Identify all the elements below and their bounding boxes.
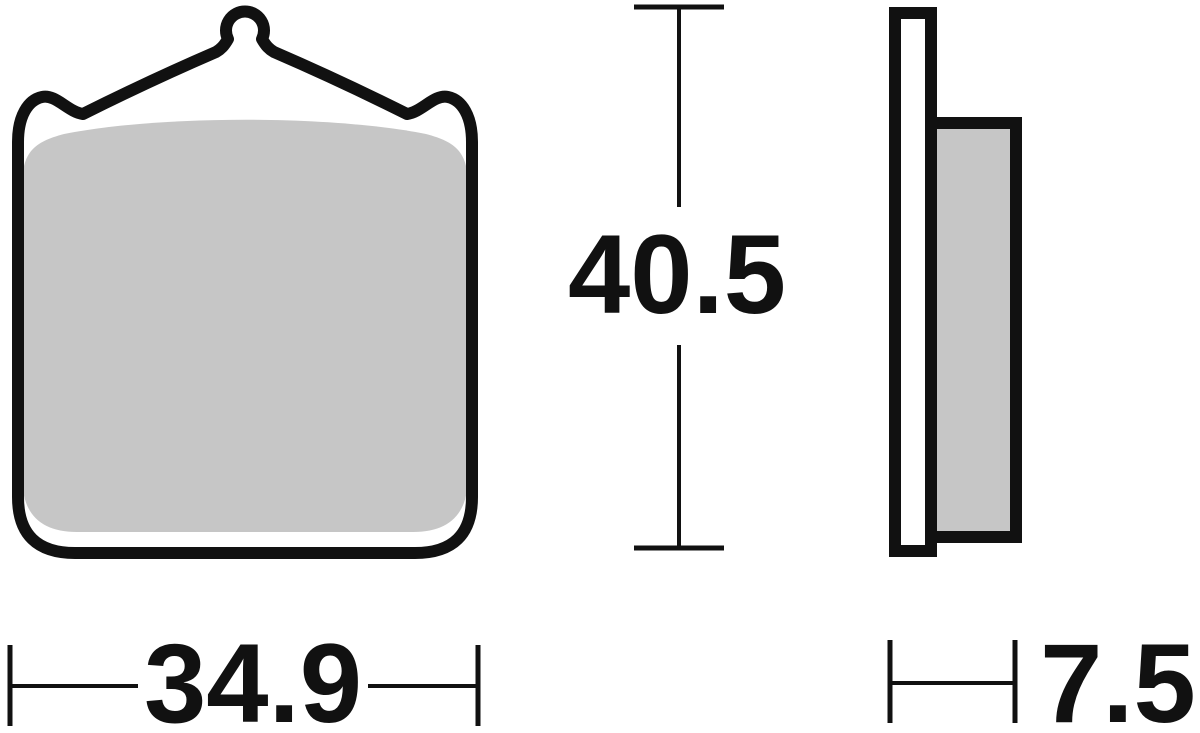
thickness-dim-label: 7.5 <box>1040 621 1196 733</box>
technical-drawing-canvas: 40.5 34.9 7.5 <box>0 0 1200 733</box>
width-dimension: 34.9 <box>10 621 478 733</box>
width-dim-label: 34.9 <box>144 621 362 733</box>
thickness-dimension: 7.5 <box>890 621 1196 733</box>
friction-material-side <box>931 123 1016 537</box>
front-view <box>18 12 472 553</box>
backing-plate-side <box>895 13 931 551</box>
friction-material-front <box>22 120 468 532</box>
brake-pad-drawing: 40.5 34.9 7.5 <box>0 0 1200 733</box>
height-dimension: 40.5 <box>568 7 786 548</box>
side-view <box>895 13 1016 551</box>
height-dim-label: 40.5 <box>568 212 786 337</box>
